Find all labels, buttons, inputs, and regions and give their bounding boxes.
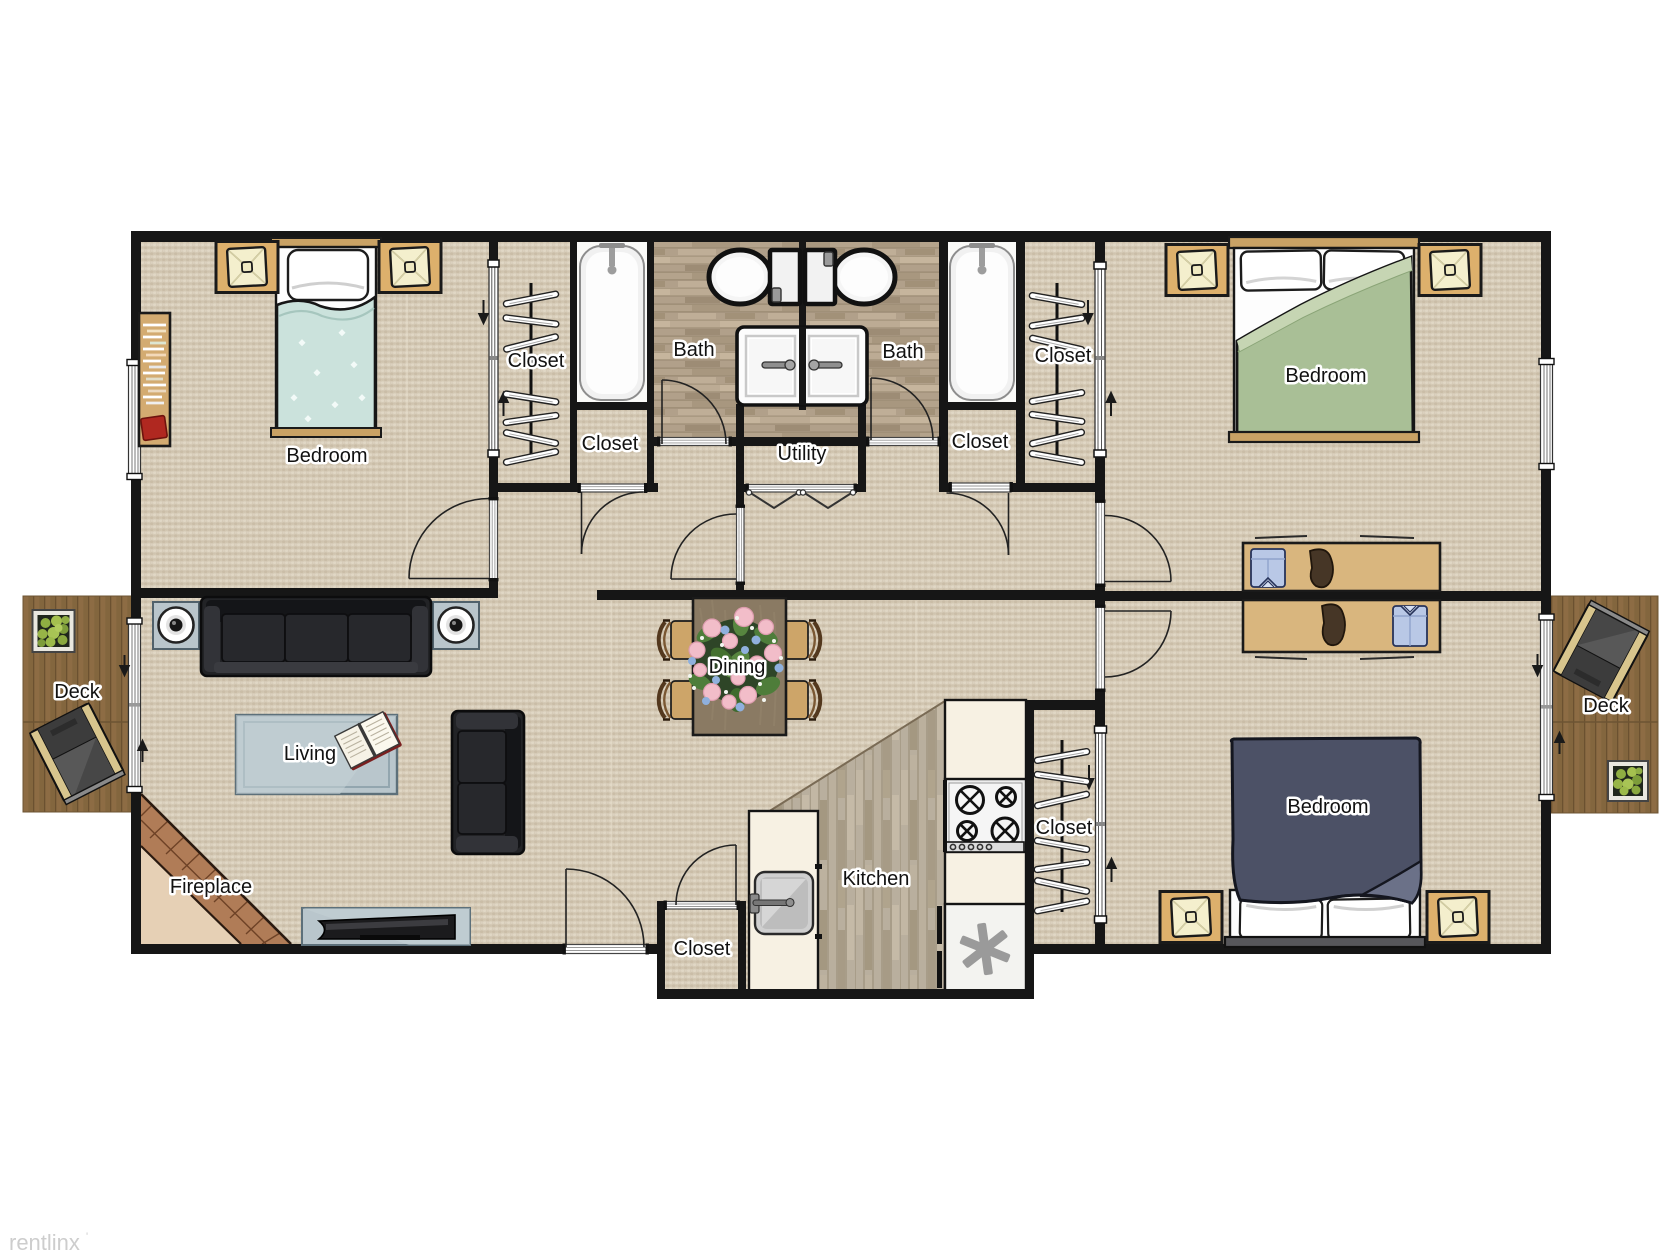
svg-text:Kitchen: Kitchen (843, 868, 910, 890)
svg-text:Bath: Bath (882, 341, 923, 363)
svg-text:rentlinx: rentlinx (9, 1230, 80, 1255)
svg-text:Closet: Closet (1035, 345, 1092, 367)
svg-text:Closet: Closet (952, 431, 1009, 453)
svg-text:Deck: Deck (54, 681, 101, 703)
svg-text:Utility: Utility (778, 443, 827, 465)
svg-text:Closet: Closet (1036, 817, 1093, 839)
svg-text:Closet: Closet (674, 938, 731, 960)
svg-text:Bedroom: Bedroom (1285, 365, 1366, 387)
svg-text:Dining: Dining (709, 656, 766, 678)
svg-text:Deck: Deck (1583, 695, 1630, 717)
svg-text:Fireplace: Fireplace (170, 876, 252, 898)
svg-text:Living: Living (284, 743, 336, 765)
svg-text:': ' (86, 1231, 88, 1243)
svg-text:Bedroom: Bedroom (1287, 796, 1368, 818)
svg-text:Closet: Closet (508, 350, 565, 372)
svg-text:Closet: Closet (582, 433, 639, 455)
svg-text:Bedroom: Bedroom (286, 445, 367, 467)
svg-text:Bath: Bath (673, 339, 714, 361)
